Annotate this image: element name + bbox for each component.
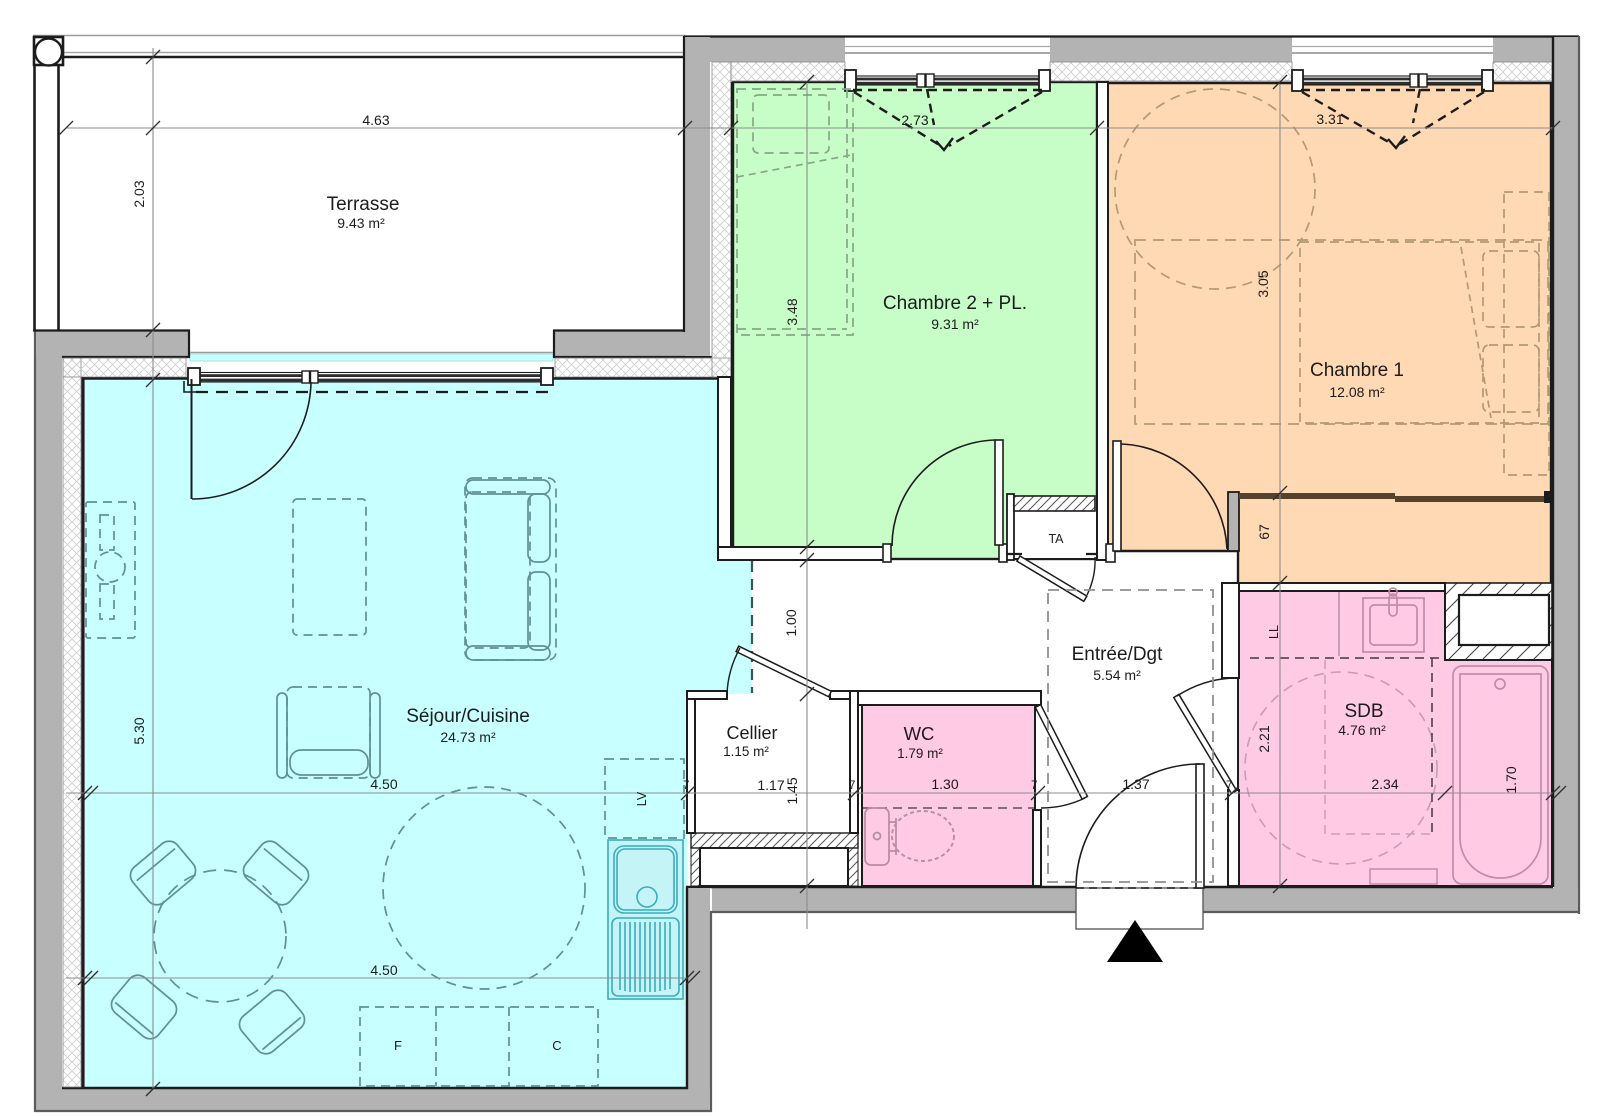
- svg-text:C: C: [552, 1038, 561, 1053]
- svg-text:Chambre 2 + PL.: Chambre 2 + PL.: [883, 293, 1027, 314]
- svg-text:Séjour/Cuisine: Séjour/Cuisine: [406, 706, 530, 727]
- svg-text:Terrasse: Terrasse: [327, 194, 400, 215]
- svg-text:9.43 m²: 9.43 m²: [337, 215, 385, 231]
- svg-text:3.48: 3.48: [784, 298, 800, 325]
- svg-text:Cellier: Cellier: [726, 723, 777, 743]
- svg-text:7: 7: [1226, 780, 1232, 792]
- svg-text:F: F: [394, 1038, 402, 1053]
- svg-text:4.50: 4.50: [370, 776, 397, 792]
- svg-text:1.15 m²: 1.15 m²: [723, 744, 769, 759]
- svg-text:5.30: 5.30: [131, 717, 147, 744]
- svg-text:Chambre 1: Chambre 1: [1310, 360, 1404, 381]
- svg-text:LL: LL: [1267, 625, 1281, 639]
- svg-text:1.79 m²: 1.79 m²: [897, 746, 943, 761]
- svg-text:2.73: 2.73: [901, 112, 928, 128]
- svg-text:1.70: 1.70: [1503, 766, 1519, 793]
- svg-text:4.63: 4.63: [362, 112, 389, 128]
- svg-text:3.31: 3.31: [1316, 111, 1343, 127]
- svg-text:1.37: 1.37: [1122, 776, 1149, 792]
- svg-text:WC: WC: [904, 723, 935, 744]
- svg-text:TA: TA: [1048, 532, 1064, 546]
- svg-text:7: 7: [849, 780, 855, 792]
- svg-text:Entrée/Dgt: Entrée/Dgt: [1072, 644, 1164, 665]
- svg-text:9.31 m²: 9.31 m²: [931, 316, 979, 332]
- svg-text:7: 7: [1031, 780, 1037, 792]
- svg-text:2.21: 2.21: [1256, 725, 1272, 752]
- svg-text:1.30: 1.30: [931, 776, 958, 792]
- svg-text:1.00: 1.00: [783, 609, 799, 636]
- svg-text:67: 67: [1256, 524, 1272, 540]
- svg-text:12.08 m²: 12.08 m²: [1329, 384, 1385, 400]
- svg-text:4.50: 4.50: [370, 962, 397, 978]
- svg-text:1.17: 1.17: [757, 777, 784, 793]
- svg-text:7: 7: [683, 780, 689, 792]
- svg-text:2.03: 2.03: [131, 180, 147, 207]
- svg-text:1.45: 1.45: [784, 777, 800, 804]
- svg-text:5.54 m²: 5.54 m²: [1093, 667, 1141, 683]
- svg-text:4.76 m²: 4.76 m²: [1338, 722, 1386, 738]
- svg-text:2.34: 2.34: [1371, 776, 1398, 792]
- svg-text:3.05: 3.05: [1255, 270, 1271, 297]
- svg-text:SDB: SDB: [1344, 701, 1383, 722]
- svg-text:LV: LV: [635, 791, 649, 806]
- svg-text:24.73 m²: 24.73 m²: [440, 729, 496, 745]
